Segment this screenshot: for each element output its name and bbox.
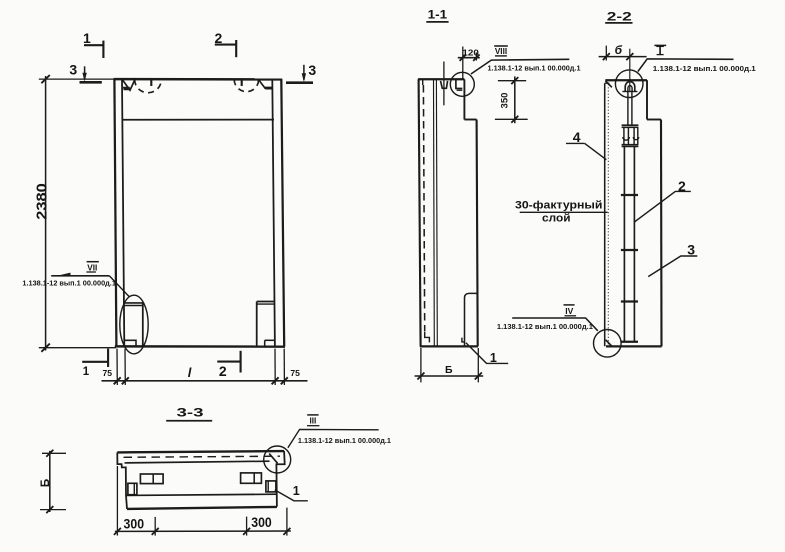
svg-text:VIII: VIII: [495, 47, 507, 56]
svg-text:1: 1: [83, 30, 91, 46]
svg-text:III: III: [309, 417, 316, 426]
svg-text:Б: Б: [445, 364, 453, 376]
svg-text:IV: IV: [565, 306, 573, 316]
svg-text:Б: Б: [40, 479, 52, 487]
svg-text:3: 3: [308, 62, 316, 78]
svg-text:VII: VII: [87, 263, 97, 272]
svg-text:350: 350: [500, 93, 511, 109]
svg-text:1: 1: [293, 484, 300, 498]
svg-text:4: 4: [573, 129, 581, 145]
svg-text:1.138.1-12 вып.1 00.000д.1: 1.138.1-12 вып.1 00.000д.1: [497, 322, 594, 331]
svg-text:1.138.1-12 вып.1 00.000д.1: 1.138.1-12 вып.1 00.000д.1: [22, 278, 116, 287]
svg-text:1.138.1-12 вып.1 00.000д.1: 1.138.1-12 вып.1 00.000д.1: [298, 436, 392, 445]
svg-text:300: 300: [124, 517, 145, 532]
svg-text:1: 1: [83, 366, 90, 378]
svg-text:3: 3: [69, 61, 77, 77]
svg-text:75: 75: [103, 368, 113, 378]
svg-text:слой: слой: [542, 212, 571, 224]
svg-text:3: 3: [687, 241, 695, 257]
svg-text:2380: 2380: [34, 183, 50, 220]
svg-text:2: 2: [215, 30, 223, 46]
svg-text:l: l: [188, 365, 192, 380]
svg-text:3-3: 3-3: [177, 406, 205, 420]
svg-text:2: 2: [678, 178, 686, 194]
svg-text:2-2: 2-2: [607, 10, 632, 24]
svg-text:300: 300: [251, 515, 272, 530]
svg-text:1-1: 1-1: [428, 8, 448, 22]
svg-text:б: б: [615, 43, 623, 57]
svg-text:1.138.1-12 вып.1 00.000д.1: 1.138.1-12 вып.1 00.000д.1: [488, 63, 582, 72]
svg-text:30-фактурный: 30-фактурный: [515, 200, 603, 212]
svg-text:120: 120: [462, 49, 479, 58]
svg-text:1.138.1-12 вып.1 00.000д.1: 1.138.1-12 вып.1 00.000д.1: [653, 64, 757, 73]
svg-text:75: 75: [290, 368, 300, 378]
svg-text:1: 1: [490, 351, 497, 365]
svg-text:2: 2: [219, 363, 227, 379]
